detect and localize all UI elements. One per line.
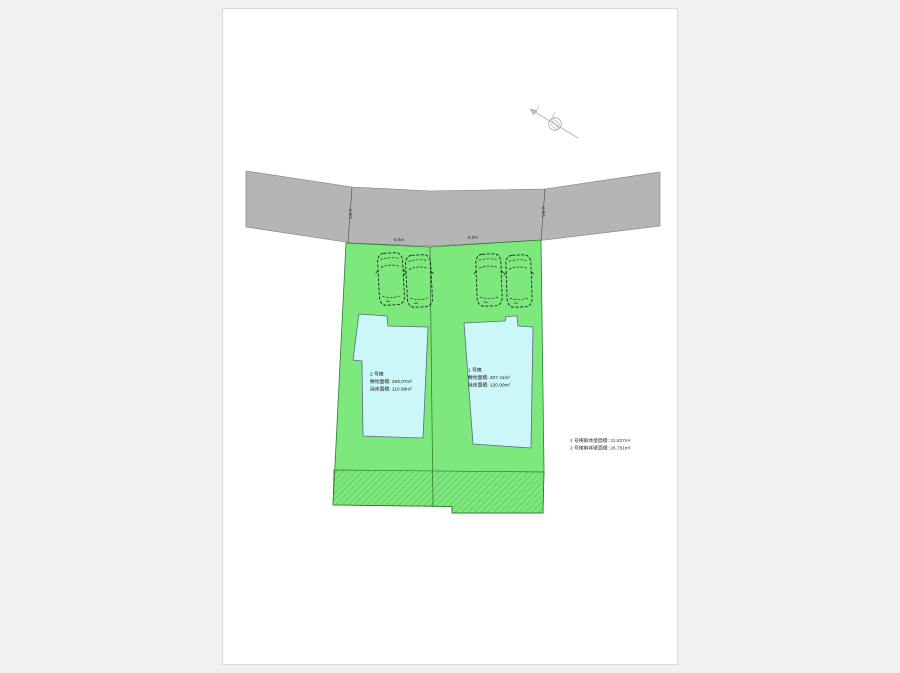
road [246,171,660,246]
frontage-dim-left: 8.8m [394,237,405,242]
notes-block: 1 号棟解体壁面積: 31.827m² 2 号棟解体壁面積: 26.761m² [570,437,631,452]
side-dim-right: 6.0m [541,207,547,218]
site-plan-drawing: 8.8m 8.9m 6.0m 6.0m 2 号棟 敷地面積: 200.07m² … [0,0,900,673]
lot-2-name: 2 号棟 [370,371,384,378]
lot-1-site-area: 敷地面積: 207.41m² [468,374,511,381]
lot-2-site-area: 敷地面積: 200.07m² [370,378,413,385]
hatched-setback-area [333,470,544,513]
note-line-2: 2 号棟解体壁面積: 26.761m² [570,445,631,452]
frontage-dim-right: 8.9m [468,235,479,240]
side-dim-left: 6.0m [348,209,354,220]
north-arrow-icon [530,106,578,138]
building-1-footprint [464,316,533,448]
lot-2-floor-area: 延床面積: 110.98m² [370,386,412,393]
lot-1-floor-area: 延床面積: 120.90m² [468,382,511,389]
lot-1-name: 1 号棟 [468,367,482,374]
building-2-footprint [353,314,428,438]
drawing-canvas: 8.8m 8.9m 6.0m 6.0m 2 号棟 敷地面積: 200.07m² … [0,0,900,673]
note-line-1: 1 号棟解体壁面積: 31.827m² [570,437,631,444]
